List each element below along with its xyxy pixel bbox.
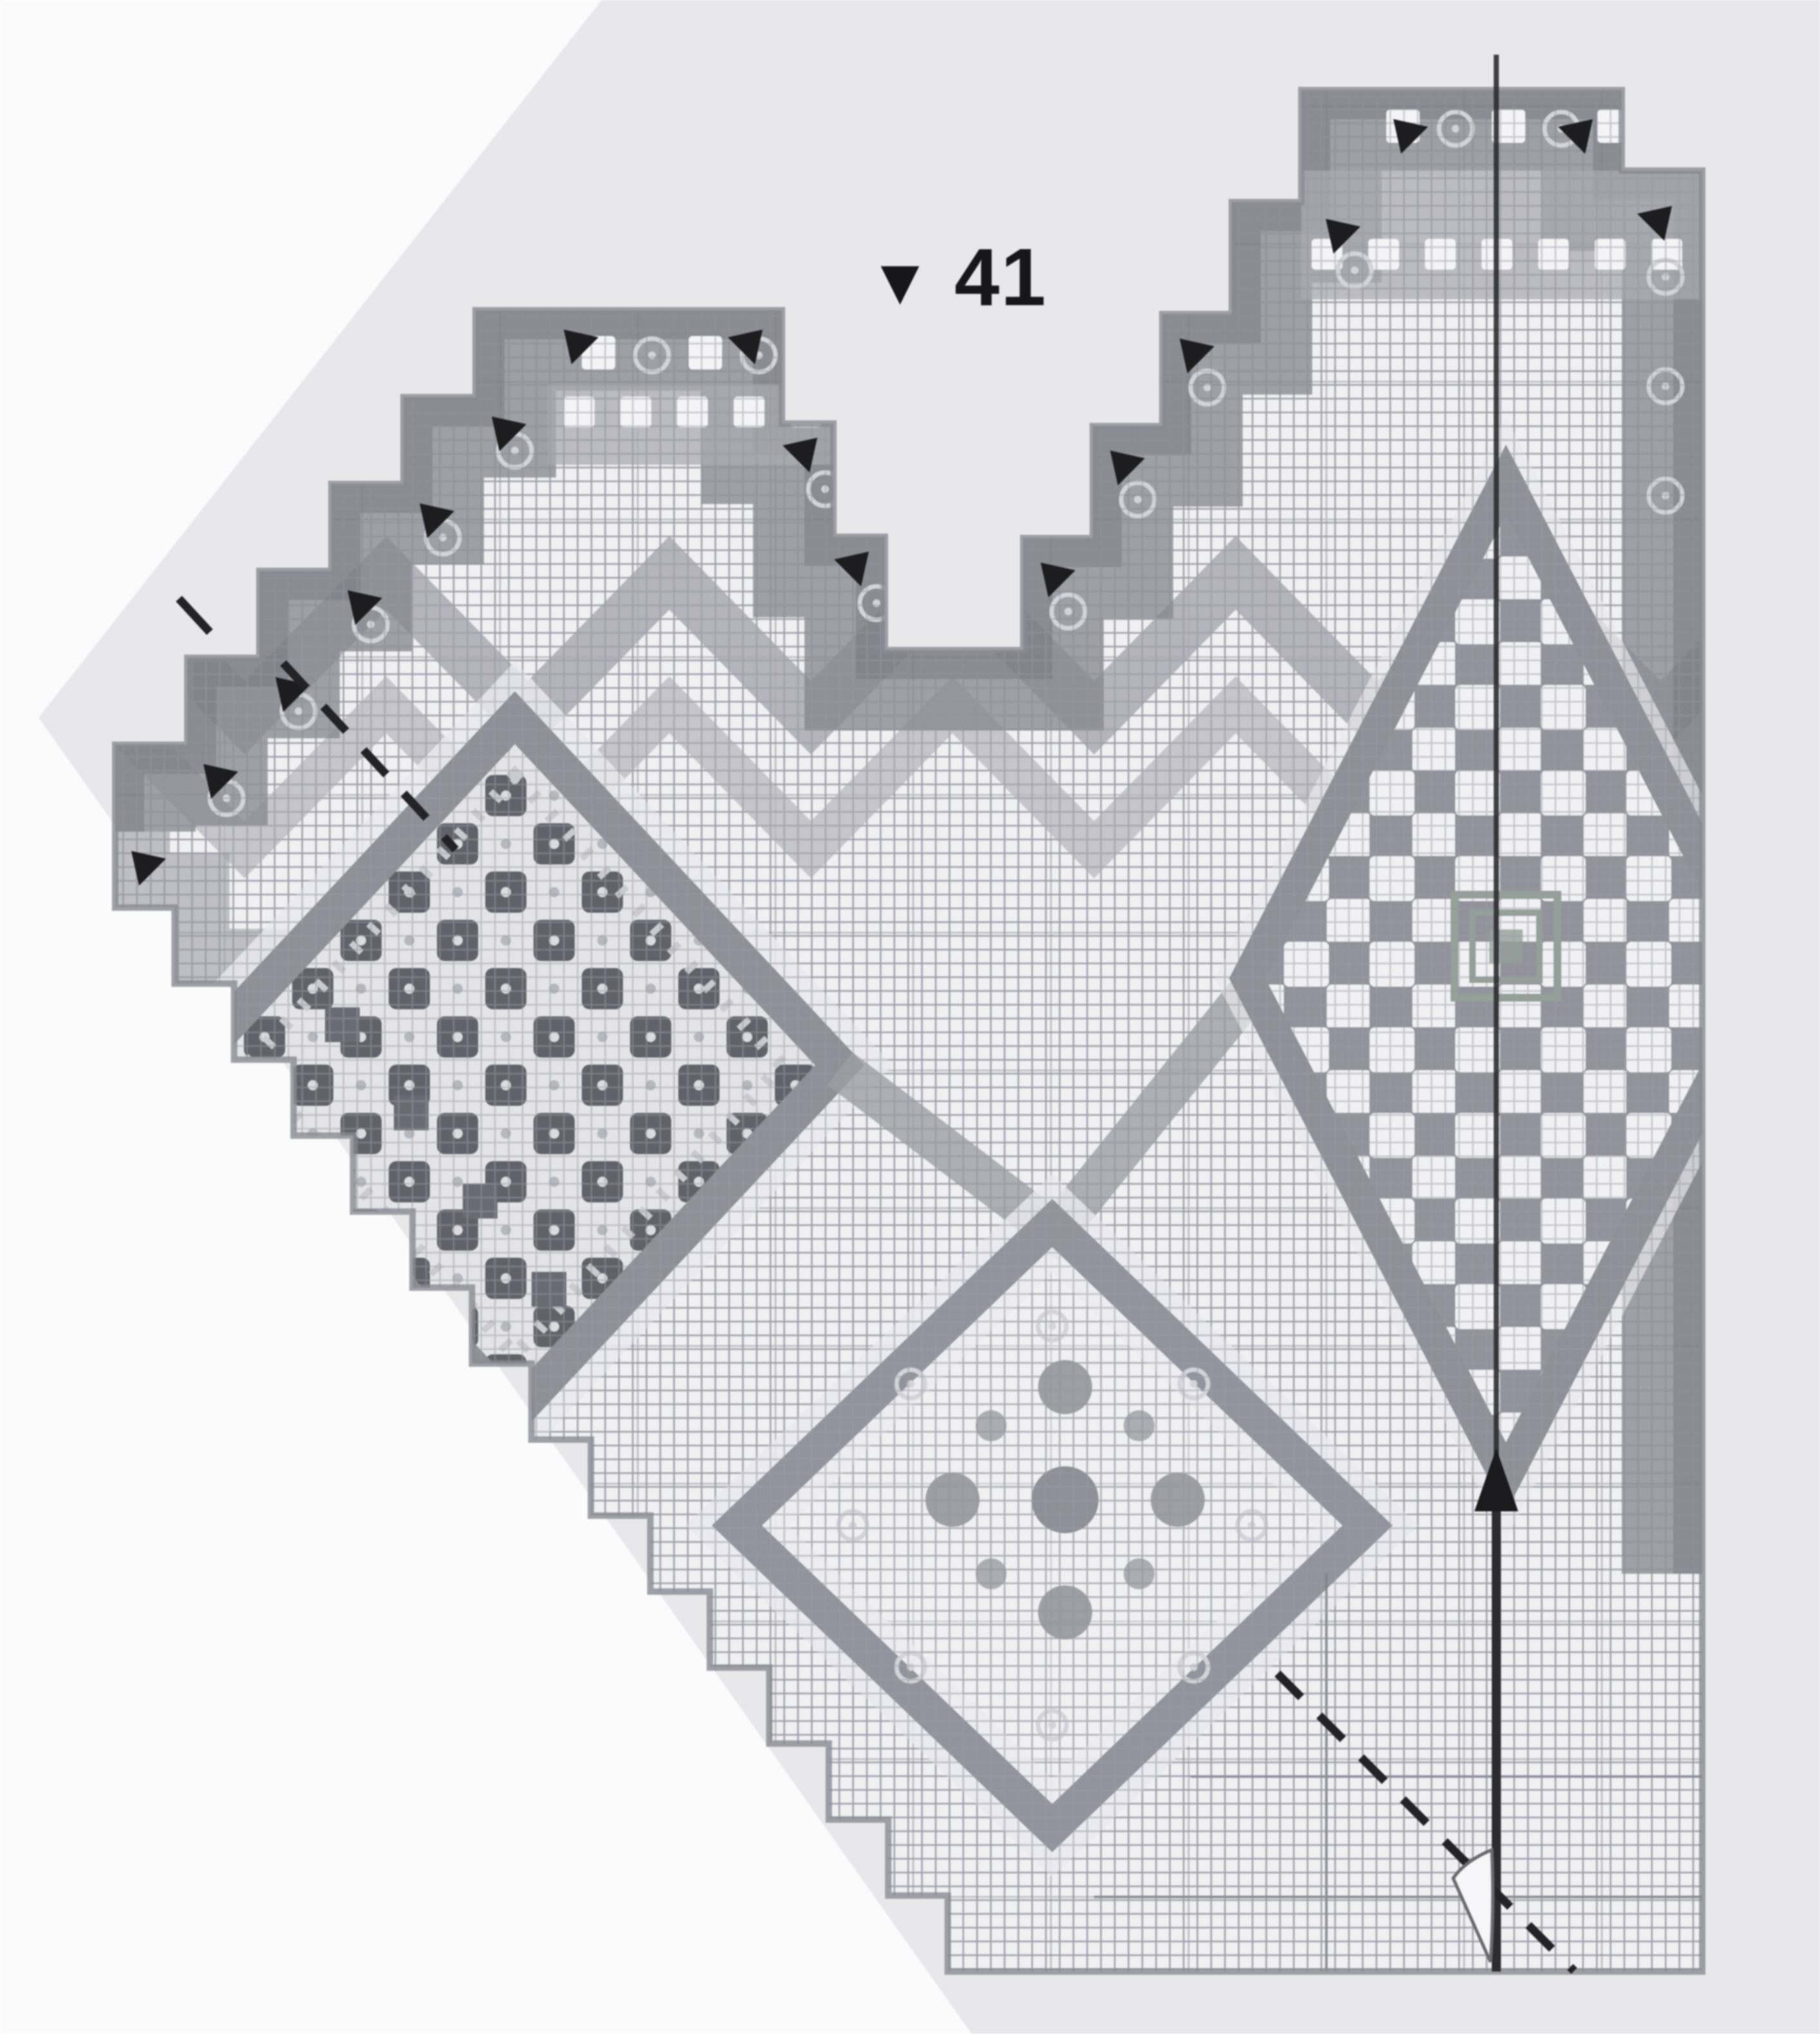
row-marker-label: ▼ 41 — [868, 237, 1047, 318]
row-number: 41 — [954, 237, 1047, 318]
triangle-down-icon: ▼ — [868, 248, 933, 314]
scanned-knitting-chart-page: ▼ 41 — [0, 0, 1820, 2034]
